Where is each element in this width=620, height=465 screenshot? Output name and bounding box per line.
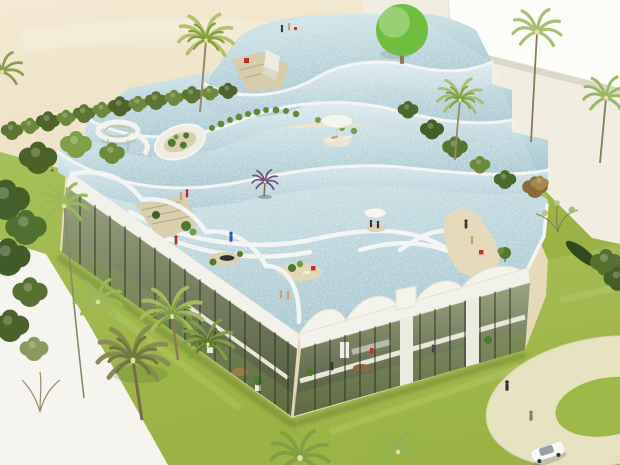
pier-1 <box>400 316 413 386</box>
render-canvas <box>0 0 620 465</box>
red-plant <box>370 348 374 354</box>
architectural-render <box>0 0 620 465</box>
red-beach-chair <box>479 250 484 255</box>
person-walking-1 <box>505 380 509 391</box>
spa-pool <box>219 255 235 262</box>
person-walking-2 <box>529 411 533 421</box>
red-deck-chair <box>311 266 316 271</box>
person-blue <box>229 232 233 242</box>
pier-2 <box>466 297 479 367</box>
red-cabinet <box>244 58 249 63</box>
person-red <box>174 235 177 244</box>
